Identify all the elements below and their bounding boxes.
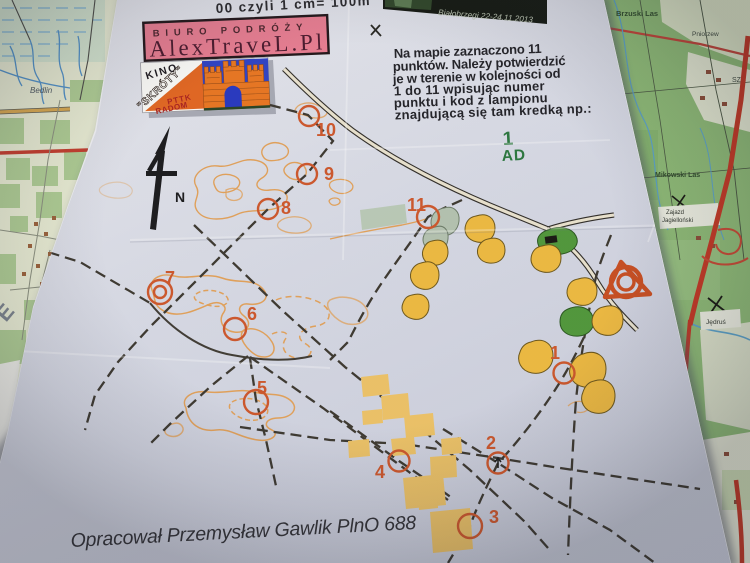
svg-text:N: N: [175, 189, 185, 205]
svg-text:11: 11: [407, 195, 426, 215]
svg-text:7: 7: [165, 268, 175, 288]
svg-text:9: 9: [324, 164, 334, 184]
svg-text:8: 8: [281, 198, 291, 218]
svg-text:3: 3: [489, 507, 499, 527]
svg-text:AD: AD: [501, 147, 526, 165]
svg-text:10: 10: [316, 120, 336, 140]
svg-text:Opracował Przemysław Gawlik Pl: Opracował Przemysław Gawlik PlnO 688: [70, 512, 417, 552]
svg-text:5: 5: [257, 378, 267, 398]
svg-text:1: 1: [550, 343, 560, 363]
svg-text:2: 2: [486, 433, 496, 453]
svg-text:6: 6: [247, 304, 257, 324]
svg-text:4: 4: [375, 462, 385, 482]
svg-text:00 czyli 1 cm= 100m: 00 czyli 1 cm= 100m: [215, 0, 370, 16]
